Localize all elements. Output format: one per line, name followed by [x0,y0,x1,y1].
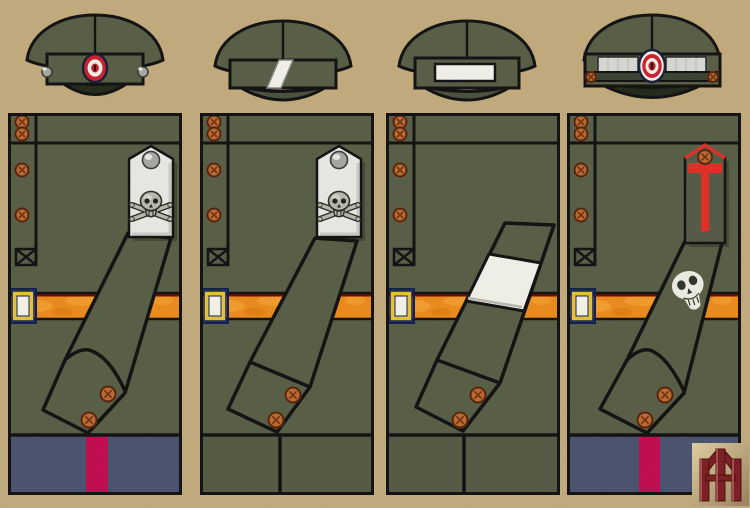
copper-button-icon [269,413,284,428]
belt-buckle [569,289,595,323]
cap-figure-4 [572,2,732,102]
band-rectangle [435,64,495,81]
tunic-figure-4 [567,113,741,495]
copper-button-icon [471,388,486,403]
silver-button-icon [143,152,160,169]
belt-buckle [10,289,36,323]
shoulder-board-skull [129,146,177,241]
copper-button-icon [16,209,29,222]
copper-button-icon [101,387,116,402]
trousers-olive [386,435,560,493]
copper-button-icon [708,72,718,82]
artist-monogram [692,443,749,507]
silver-button-icon [331,152,348,169]
copper-button-icon [16,128,29,141]
uniform-plate [0,0,750,508]
trousers-olive [200,435,374,493]
silver-button-icon [138,67,148,77]
copper-button-icon [698,150,712,164]
copper-button-icon [586,72,596,82]
copper-button-icon [575,128,588,141]
cap-figure-1 [15,2,175,102]
trouser-stripe [86,435,108,493]
copper-button-icon [394,209,407,222]
copper-button-icon [394,128,407,141]
copper-button-icon [16,164,29,177]
copper-button-icon [453,413,468,428]
trouser-stripe [639,435,660,493]
cockade-icon [639,50,665,82]
copper-button-icon [82,413,97,428]
shoulder-board-red-T [685,145,729,247]
tunic-figure-3 [386,113,560,495]
copper-button-icon [575,164,588,177]
copper-button-icon [208,164,221,177]
copper-button-icon [208,209,221,222]
belt-buckle [388,289,414,323]
board-red-stripe [701,173,709,231]
tunic-figure-2 [200,113,374,495]
cockade-icon [83,54,107,82]
belt-buckle [202,289,228,323]
silver-button-icon [42,67,52,77]
copper-button-icon [208,128,221,141]
copper-button-icon [638,413,653,428]
copper-button-icon [658,388,673,403]
cap-figure-3 [387,8,547,108]
tunic-figure-1 [8,113,182,495]
copper-button-icon [286,388,301,403]
trousers-blue [8,435,182,493]
cap-figure-2 [203,8,363,108]
copper-button-icon [575,209,588,222]
copper-button-icon [394,164,407,177]
shoulder-board-skull [317,146,365,241]
